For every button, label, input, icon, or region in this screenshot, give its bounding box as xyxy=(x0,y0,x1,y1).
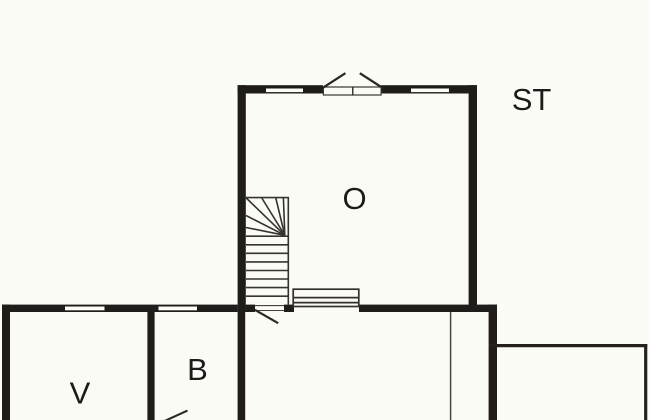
svg-text:ST: ST xyxy=(512,82,552,117)
svg-text:V: V xyxy=(70,376,91,411)
svg-text:B: B xyxy=(187,352,208,387)
svg-text:O: O xyxy=(342,181,366,216)
